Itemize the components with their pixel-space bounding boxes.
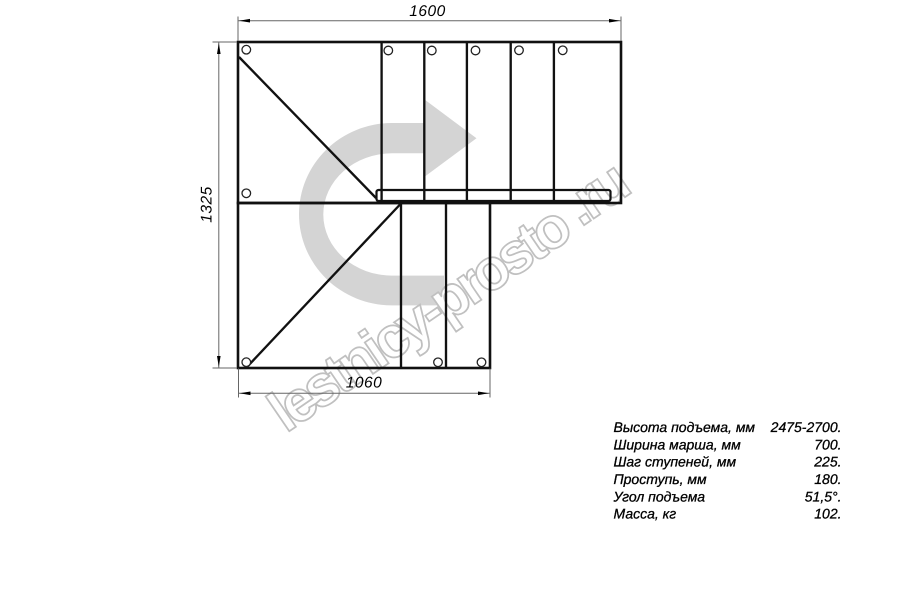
svg-text:Угол подъема: Угол подъема bbox=[613, 488, 706, 504]
svg-text:Высота подъема, мм: Высота подъема, мм bbox=[614, 419, 756, 435]
svg-text:1060: 1060 bbox=[346, 375, 382, 392]
svg-text:102.: 102. bbox=[814, 506, 841, 522]
svg-text:Проступь, мм: Проступь, мм bbox=[614, 471, 708, 487]
svg-text:1325: 1325 bbox=[199, 186, 216, 222]
svg-text:Масса, кг: Масса, кг bbox=[614, 506, 677, 522]
svg-text:2475-2700.: 2475-2700. bbox=[770, 419, 842, 435]
svg-text:180.: 180. bbox=[814, 471, 841, 487]
svg-text:Ширина марша, мм: Ширина марша, мм bbox=[614, 436, 742, 452]
svg-text:225.: 225. bbox=[813, 454, 841, 470]
svg-text:1600: 1600 bbox=[409, 3, 445, 20]
svg-text:51,5°.: 51,5°. bbox=[805, 488, 842, 504]
svg-text:Шаг ступеней, мм: Шаг ступеней, мм bbox=[614, 454, 737, 470]
svg-text:700.: 700. bbox=[814, 436, 841, 452]
